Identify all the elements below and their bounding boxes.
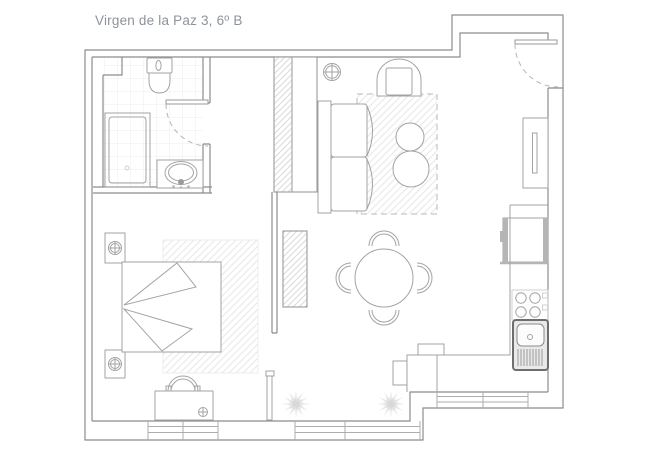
coffee-table-large (393, 151, 429, 187)
bedroom-door-leaf (266, 371, 274, 420)
armchair (377, 59, 421, 96)
double-bed (122, 262, 221, 352)
ceiling-light (324, 64, 341, 81)
window-bottom-left (148, 421, 218, 440)
desk (155, 391, 213, 420)
dining-chair-left (336, 263, 351, 293)
sofa (318, 101, 373, 213)
coffee-table-small (396, 123, 424, 151)
toilet (147, 58, 172, 93)
dining-table (355, 249, 413, 307)
window-bottom-right (437, 392, 528, 408)
plant-left (282, 390, 310, 418)
kitchen-oven (500, 218, 548, 263)
kitchen-hob (512, 290, 548, 320)
plant-right (377, 390, 405, 418)
kitchen-sink (513, 320, 548, 370)
floor-plan-drawing (0, 0, 650, 450)
structural-shaft-column (283, 231, 307, 307)
kitchen-tall-cabinet (523, 118, 548, 188)
desk-chair (166, 376, 200, 392)
entry-door-swing-arc (515, 44, 558, 87)
bedside-lamp-top (109, 242, 122, 255)
floor-plan-page: Virgen de la Paz 3, 6º B (0, 0, 650, 450)
bedside-lamp-bottom (109, 358, 122, 371)
dining-chair-bottom (369, 310, 399, 325)
window-bottom-center (295, 421, 420, 440)
bedroom-partition-wall (272, 192, 277, 333)
hall-living-wall (274, 57, 317, 192)
dining-chair-top (369, 231, 399, 246)
dining-chair-right (417, 263, 432, 293)
entry-door (515, 40, 558, 87)
desk-lamp (199, 408, 208, 417)
peninsula-accessory (393, 344, 444, 385)
